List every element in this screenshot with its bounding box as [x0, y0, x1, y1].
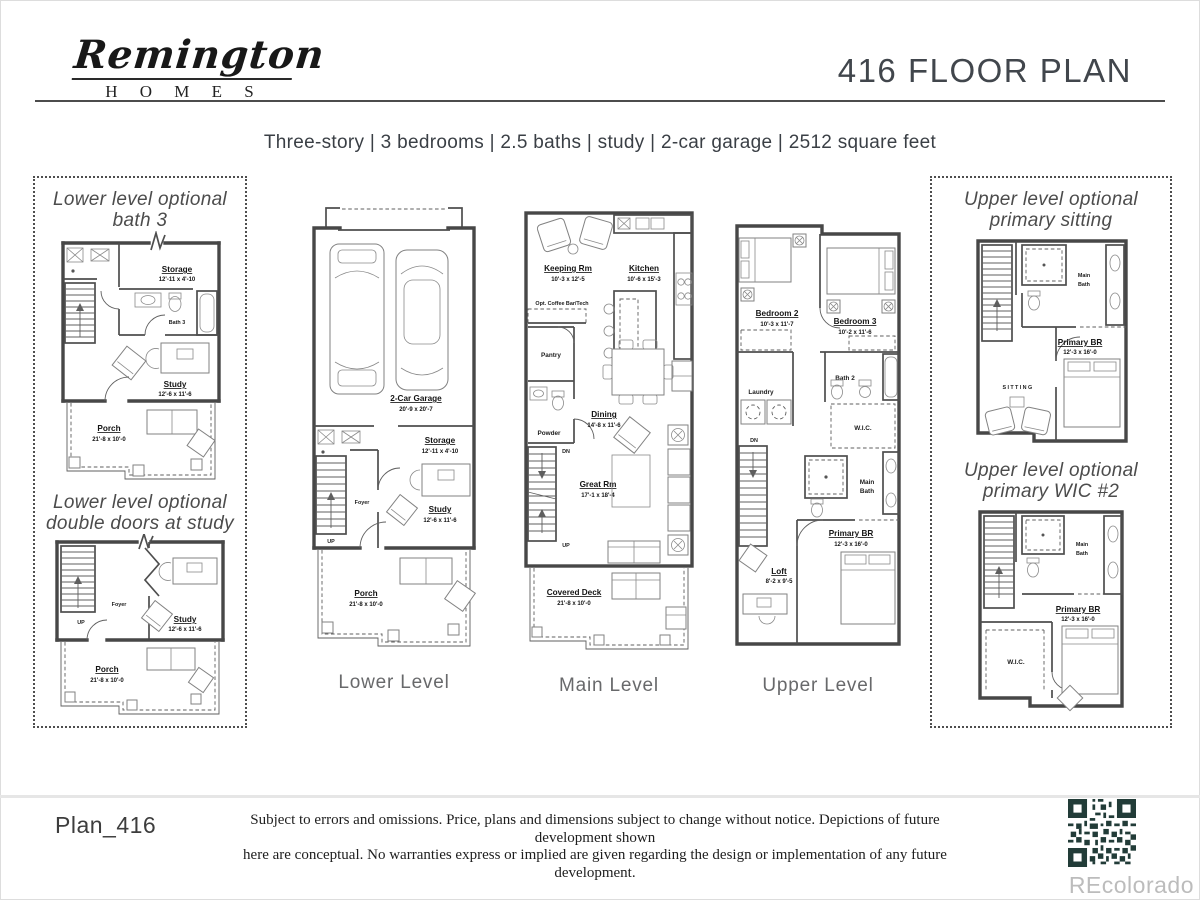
main-bath-label-1: Main [1076, 542, 1088, 548]
wic-label: W.I.C. [854, 425, 872, 432]
stairs [982, 245, 1012, 341]
sitting-furniture [984, 397, 1051, 436]
foyer-label: Foyer [355, 500, 371, 506]
deck-dims: 21'-8 x 10'-0 [557, 601, 591, 607]
qr-modules [1068, 799, 1136, 867]
page-title: 416 FLOOR PLAN [838, 52, 1132, 90]
lower-options-box: Lower level optional bath 3 [33, 176, 247, 728]
main-bath-label-1: Main [860, 479, 875, 486]
kitchen-dims: 10'-6 x 15'-3 [627, 277, 661, 283]
porch [63, 377, 219, 479]
plan-summary: Three-story | 3 bedrooms | 2.5 baths | s… [0, 132, 1200, 154]
foyer-label: Foyer [112, 602, 128, 608]
porch-dims: 21'-8 x 10'-0 [349, 602, 383, 608]
header-divider [35, 100, 1165, 102]
option-upper-wic-title: Upper level optional primary WIC #2 [964, 461, 1138, 502]
floor-plan-upper-level: Bedroom 2 10'-3 x 11'-7 Bedroom 3 10'-2 … [727, 212, 909, 662]
study-dims: 12'-6 x 11'-6 [168, 627, 202, 633]
bath3-fixtures [135, 291, 217, 335]
sitting-label: SITTING [1002, 385, 1033, 391]
garage-cars [330, 244, 448, 394]
porch-label: Porch [95, 665, 118, 674]
primary-bed [841, 552, 895, 624]
coffee-bar-label: Opt. Coffee Bar/Tech [535, 301, 588, 307]
disclaimer-line2: here are conceptual. No warranties expre… [210, 847, 980, 882]
brand-logo-sub: H O M E S [74, 82, 294, 102]
option-lower-doors-title: Lower level optional double doors at stu… [46, 493, 234, 534]
deck [530, 568, 688, 649]
storage-dims: 12'-11 x 4'-10 [159, 277, 196, 283]
lower-level-label: Lower Level [302, 672, 486, 694]
storage-label: Storage [425, 436, 456, 445]
option-title-line2: primary WIC #2 [964, 482, 1138, 503]
main-bath-fixtures [805, 452, 899, 517]
plan-id: Plan_416 [55, 812, 156, 839]
walls [63, 233, 219, 401]
primary-br-dims: 12'-3 x 16'-0 [1063, 350, 1097, 356]
storage-label: Storage [162, 265, 193, 274]
study-dims: 12'-6 x 11'-6 [423, 518, 457, 524]
keeping-room-label: Keeping Rm [544, 264, 592, 273]
dn-label: DN [750, 438, 758, 444]
powder-label: Powder [537, 430, 561, 437]
study-label: Study [174, 615, 197, 624]
porch-dims: 21'-8 x 10'-0 [92, 437, 126, 443]
main-bath-label-2: Bath [1078, 282, 1090, 288]
primary-br-dims: 12'-3 x 16'-0 [834, 542, 868, 548]
main-bath-label-2: Bath [860, 488, 874, 495]
up-label: UP [327, 539, 335, 545]
porch-label: Porch [97, 424, 120, 433]
option-title-line2: bath 3 [53, 211, 227, 232]
option-upper-sitting-title: Upper level optional primary sitting [964, 190, 1138, 231]
double-door-symbol [145, 548, 159, 596]
porch-dims: 21'-8 x 10'-0 [90, 678, 124, 684]
great-room-dims: 17'-1 x 18'-4 [581, 493, 615, 499]
footer-divider [0, 795, 1200, 798]
floor-plan-option-upper-sitting: Main Bath Primary BR 12'-3 x 16'-0 SITTI… [964, 231, 1139, 451]
study-furniture [112, 343, 209, 380]
great-room-label: Great Rm [580, 480, 617, 489]
brand-logo-script: Remington [72, 36, 297, 80]
dn-label: DN [562, 449, 570, 455]
bedroom2-furniture [739, 234, 806, 301]
study-label: Study [429, 505, 452, 514]
primary-br-label: Primary BR [1057, 338, 1102, 347]
main-bath-label-1: Main [1077, 273, 1089, 279]
dining-furniture [603, 340, 673, 404]
floor-plan-main-level: Keeping Rm 10'-3 x 12'-5 Kitchen 10'-6 x… [516, 203, 702, 663]
floor-plan-option-lower-bath3: Storage 12'-11 x 4'-10 Bath 3 Study 12'-… [49, 231, 231, 483]
bedroom3-dims: 10'-2 x 11'-6 [838, 330, 872, 336]
main-bath-label-2: Bath [1076, 551, 1088, 557]
laundry-label: Laundry [748, 389, 774, 396]
wic-label: W.I.C. [1007, 659, 1025, 666]
stairs [739, 446, 767, 546]
upper-options-box: Upper level optional primary sitting [930, 176, 1172, 728]
option-title-line1: Lower level optional [53, 190, 227, 211]
dining-dims: 14'-8 x 11'-6 [587, 423, 621, 429]
up-label: UP [77, 620, 85, 626]
option-title-line1: Upper level optional [964, 461, 1138, 482]
main-level-label: Main Level [516, 675, 702, 697]
bedroom3-furniture [827, 248, 895, 313]
main-bath-fixtures [1022, 516, 1122, 594]
bedroom2-label: Bedroom 2 [756, 309, 799, 318]
porch [318, 550, 475, 646]
pantry-label: Pantry [541, 352, 561, 359]
disclaimer: Subject to errors and omissions. Price, … [210, 812, 980, 883]
garage-label: 2-Car Garage [390, 394, 442, 403]
primary-bed [1064, 359, 1120, 427]
driveway-edge [326, 208, 462, 228]
loft-dims: 8'-2 x 9'-5 [766, 579, 794, 585]
option-title-line1: Upper level optional [964, 190, 1138, 211]
porch [61, 642, 219, 714]
great-room-furniture [608, 417, 690, 563]
main-bath-fixtures [1022, 245, 1124, 325]
floor-plan-sheet: Remington H O M E S 416 FLOOR PLAN Three… [0, 0, 1200, 900]
floor-plan-lower-level: 2-Car Garage 20'-9 x 20'-7 Storage 12'-1… [302, 198, 486, 662]
option-lower-bath3-title: Lower level optional bath 3 [53, 190, 227, 231]
keeping-room-dims: 10'-3 x 12'-5 [551, 277, 585, 283]
loft-label: Loft [771, 567, 787, 576]
floor-plan-option-lower-doors: UP Foyer Study 12'-6 x 11'-6 Porch 21'-8… [45, 534, 235, 720]
powder-fixtures [530, 387, 564, 410]
option-title-line2: double doors at study [46, 514, 234, 535]
closets [741, 330, 895, 350]
disclaimer-line1: Subject to errors and omissions. Price, … [210, 812, 980, 847]
stairs [316, 456, 346, 534]
dining-label: Dining [591, 410, 616, 419]
stairs [65, 283, 95, 343]
bath3-label: Bath 3 [169, 320, 185, 326]
stairs [528, 447, 556, 541]
upper-level-label: Upper Level [727, 675, 909, 697]
option-title-line2: primary sitting [964, 211, 1138, 232]
deck-label: Covered Deck [547, 588, 602, 597]
coffee-bar-counter [528, 309, 586, 323]
floor-plan-option-upper-wic: Main Bath Primary BR 12'-3 x 16'-0 W.I.C… [966, 502, 1136, 717]
kitchen-label: Kitchen [629, 264, 659, 273]
laundry-appliances [741, 400, 791, 424]
study-label: Study [164, 380, 187, 389]
stairs [61, 546, 95, 612]
keeping-room-furniture [536, 216, 613, 254]
primary-br-label: Primary BR [1056, 605, 1101, 614]
up-label: UP [562, 543, 570, 549]
stairs [984, 516, 1014, 608]
study-dims: 12'-6 x 11'-6 [158, 392, 192, 398]
recolorado-watermark: REcolorado [1069, 872, 1194, 899]
qr-code [1068, 799, 1136, 867]
garage-dims: 20'-9 x 20'-7 [399, 407, 433, 413]
bedroom2-dims: 10'-3 x 11'-7 [760, 322, 794, 328]
porch-label: Porch [354, 589, 377, 598]
bedroom3-label: Bedroom 3 [834, 317, 877, 326]
primary-br-label: Primary BR [829, 529, 874, 538]
primary-br-dims: 12'-3 x 16'-0 [1061, 617, 1095, 623]
mech-symbols [67, 248, 109, 273]
bath2-label: Bath 2 [835, 375, 855, 382]
brand-logo: Remington H O M E S [74, 36, 294, 102]
primary-bed [1062, 626, 1118, 694]
storage-dims: 12'-11 x 4'-10 [422, 449, 459, 455]
option-title-line1: Lower level optional [46, 493, 234, 514]
study-furniture [387, 464, 470, 525]
